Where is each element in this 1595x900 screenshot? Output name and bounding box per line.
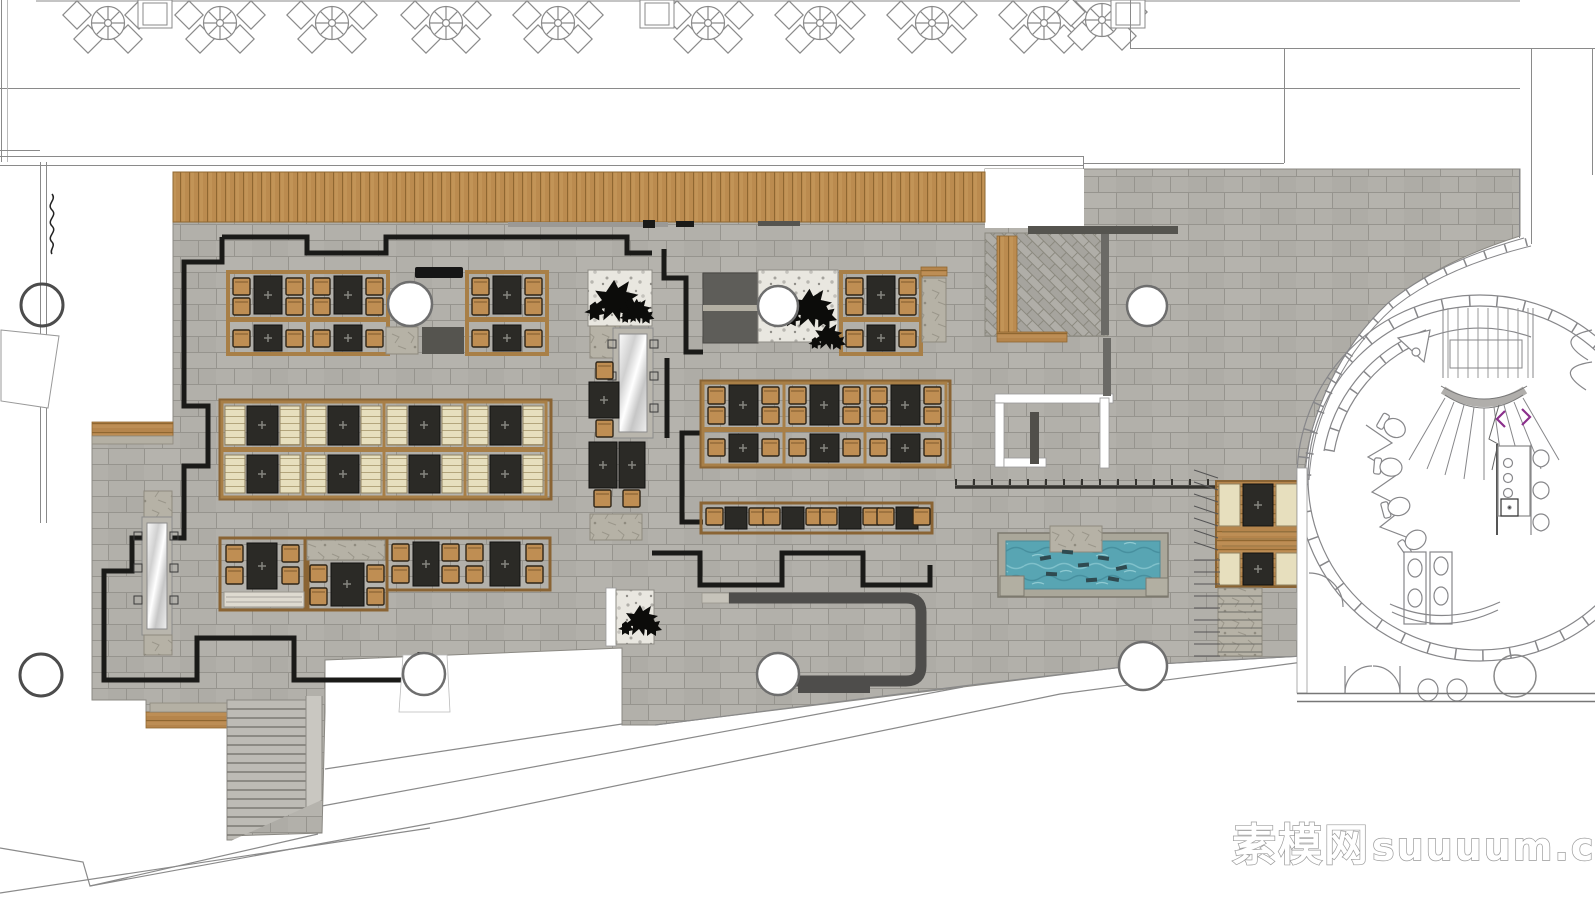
section-squiggle — [50, 194, 54, 254]
rotunda-left-wall — [1297, 468, 1307, 693]
column — [1127, 286, 1167, 326]
ramp-outline — [1, 330, 59, 408]
booth-bay — [228, 272, 308, 354]
straight-stair-flight — [1443, 308, 1533, 378]
banquette-block — [220, 400, 551, 499]
column — [388, 282, 432, 326]
outdoor-terrace — [0, 0, 1520, 162]
stone-pad — [386, 327, 418, 354]
fan-stair-treads — [1409, 398, 1559, 480]
landing-wedge — [1398, 330, 1430, 362]
vanity-room — [1497, 444, 1531, 535]
floor-plan-drawing: 素模网suuuum.com — [0, 0, 1595, 900]
stair-direction-arrows — [1497, 409, 1530, 427]
urinals — [1533, 450, 1549, 531]
pool-water-feature — [998, 526, 1168, 597]
floor-plan-page: 素模网suuuum.com — [0, 0, 1595, 900]
left-wood-strip — [92, 422, 173, 436]
planter-1 — [584, 270, 654, 326]
watermark: 素模网suuuum.com — [1232, 820, 1595, 871]
watermark-cjk: 素模网 — [1232, 820, 1370, 871]
door-bar — [415, 267, 463, 278]
planter-3 — [606, 588, 662, 646]
column — [403, 653, 445, 695]
dark-pad — [422, 327, 464, 354]
double-door — [1345, 666, 1400, 693]
gray-panels — [703, 273, 758, 343]
central-dining-rows — [701, 381, 950, 467]
column — [758, 286, 798, 326]
column — [757, 653, 799, 695]
pool-slab — [1050, 526, 1102, 552]
column-outline — [21, 284, 63, 326]
column-outline — [20, 654, 62, 696]
void-above-courtyard — [985, 169, 1084, 228]
partition-zigzag — [1366, 425, 1414, 540]
watermark-latin: suuuum.com — [1372, 825, 1595, 869]
timber-deck — [173, 172, 985, 222]
column — [1119, 642, 1167, 690]
sink-counters — [1390, 552, 1500, 624]
column — [1494, 655, 1536, 697]
wood-stone-band — [921, 267, 947, 342]
lower-wood-strip — [146, 712, 228, 728]
terrace-parasol-tables — [63, 0, 1147, 53]
door-arc — [1309, 573, 1343, 607]
